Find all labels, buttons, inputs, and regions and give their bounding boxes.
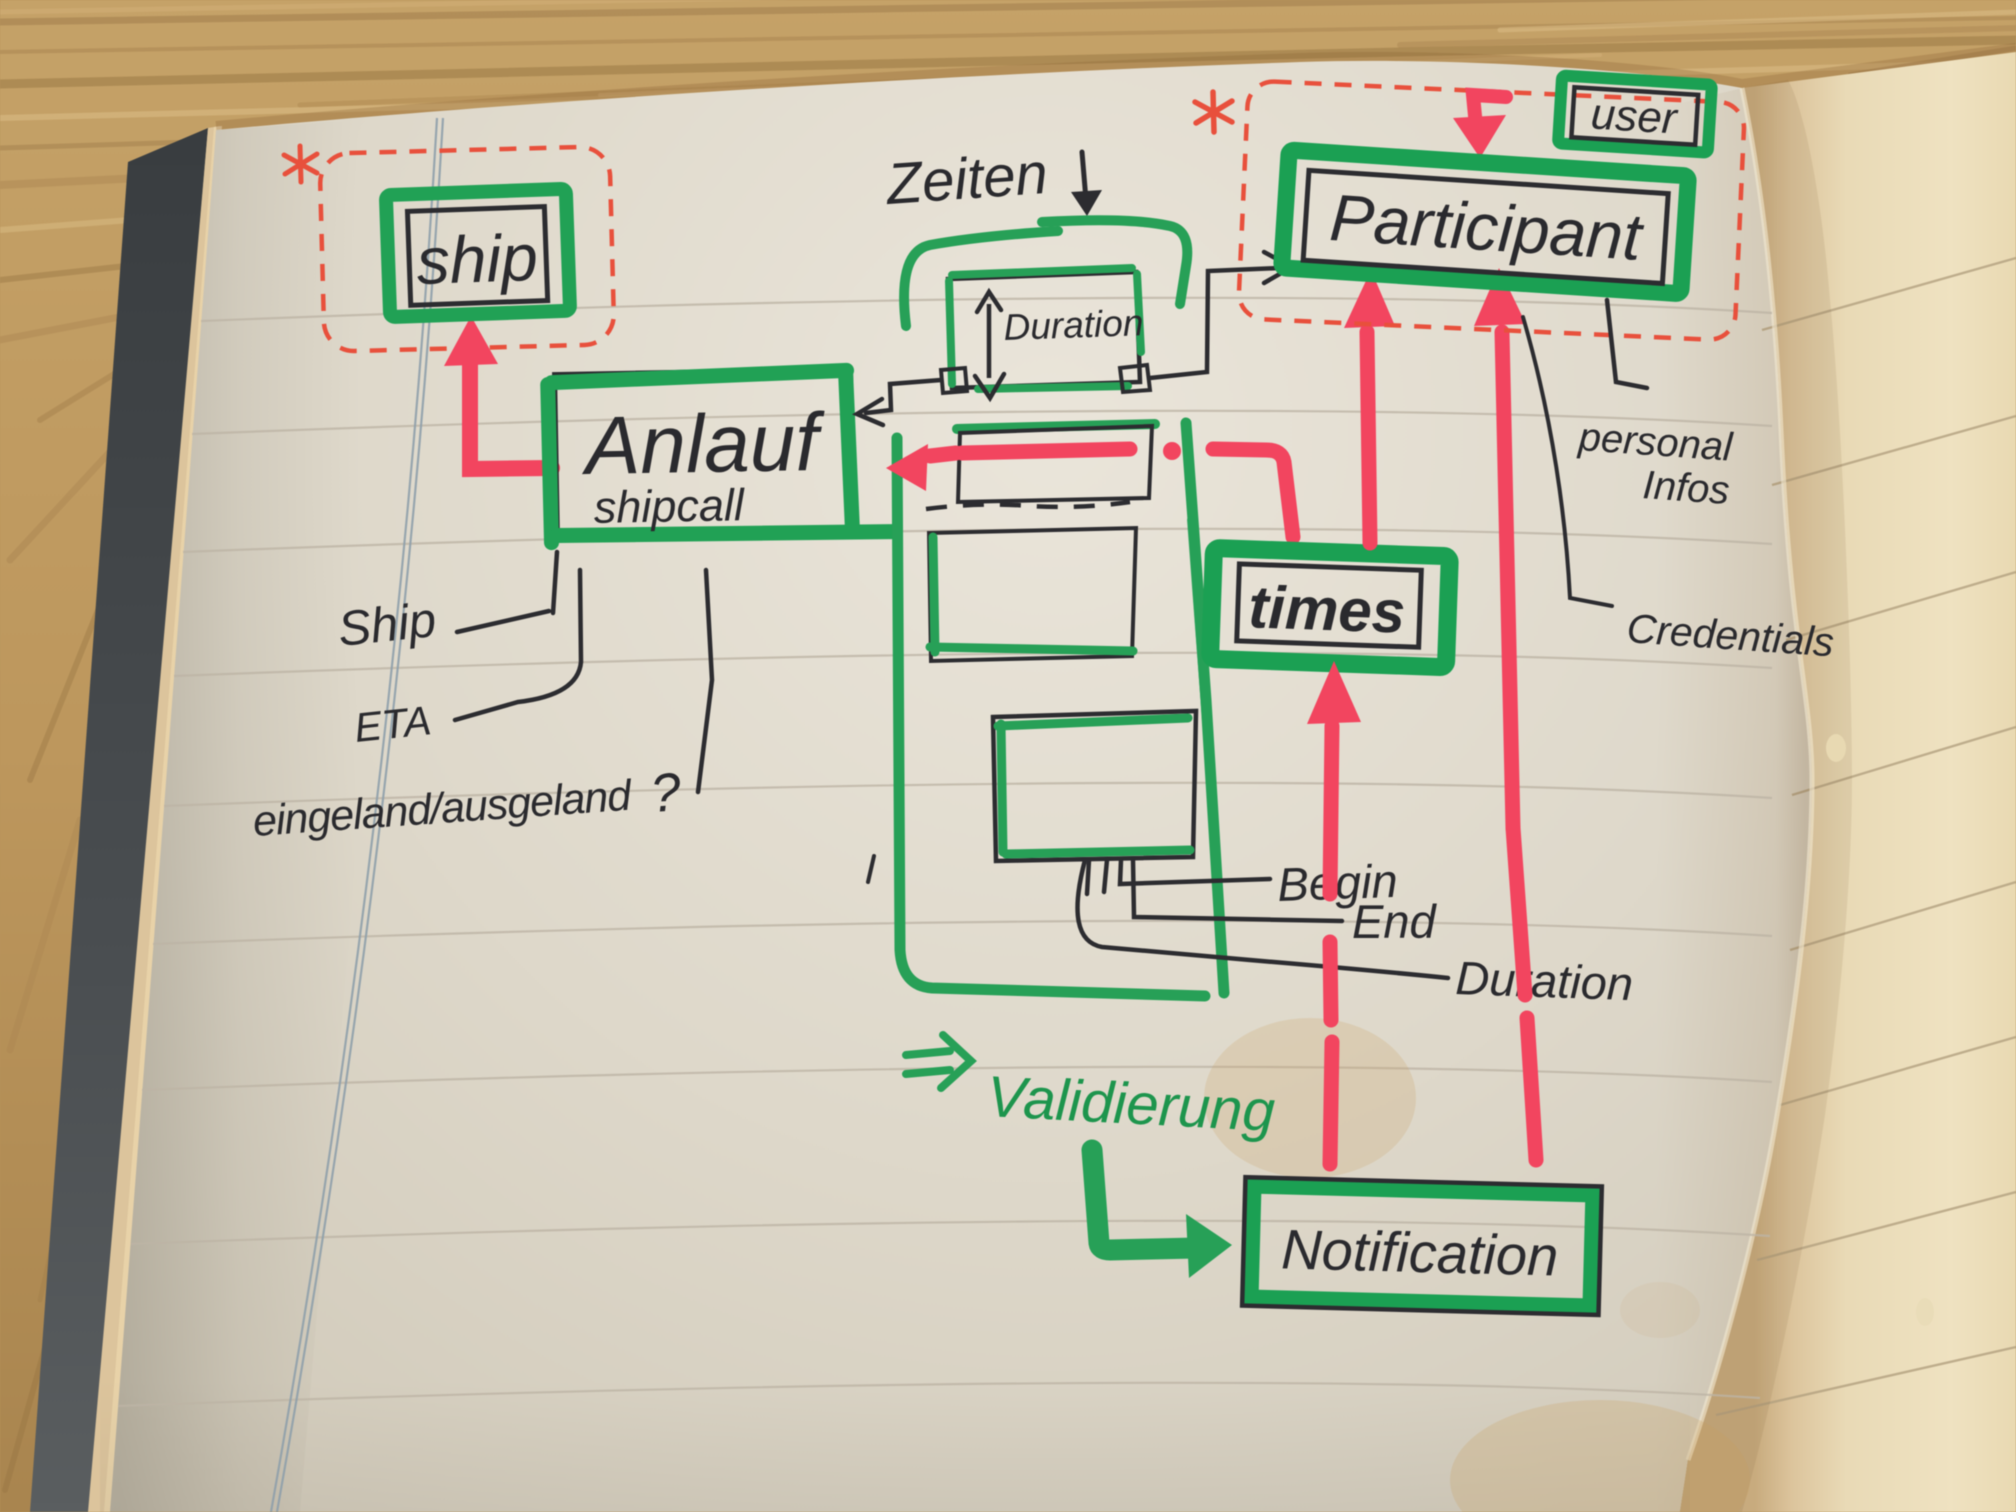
svg-text:End: End [1352, 895, 1437, 948]
svg-text:Notification: Notification [1281, 1217, 1560, 1287]
svg-text:ETA: ETA [352, 697, 433, 751]
svg-text:ship: ship [415, 220, 539, 298]
svg-text:Anlauf: Anlauf [580, 397, 826, 492]
svg-text:Duration: Duration [1455, 951, 1634, 1010]
svg-text:shipcall: shipcall [593, 479, 746, 533]
svg-text:user: user [1590, 89, 1681, 143]
svg-text:Zeiten: Zeiten [882, 141, 1049, 217]
svg-text:Infos: Infos [1641, 463, 1731, 513]
svg-text:Duration: Duration [1003, 302, 1144, 348]
svg-text:?: ? [649, 762, 683, 824]
svg-text:Ship: Ship [336, 593, 439, 657]
svg-text:times: times [1247, 573, 1406, 645]
